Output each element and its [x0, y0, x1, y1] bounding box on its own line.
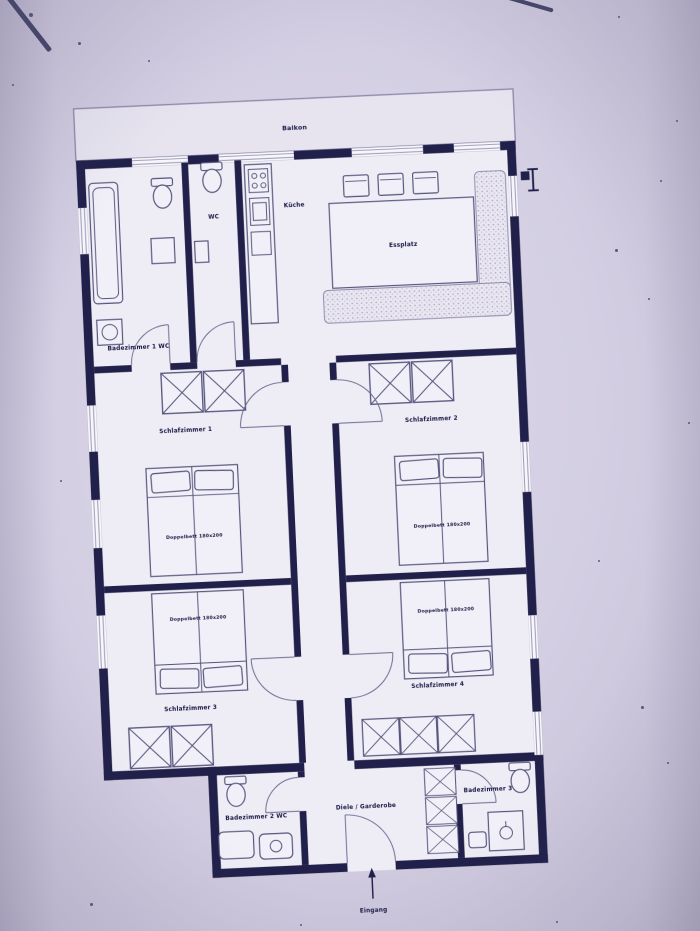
balcony-label: Balkon [282, 124, 307, 132]
dust-speck [300, 924, 302, 926]
dust-speck [60, 480, 62, 482]
dust-speck [615, 249, 618, 252]
photo-scratch [4, 0, 52, 52]
dust-speck [598, 560, 600, 562]
wardrobe-icon [400, 716, 438, 754]
window [508, 176, 519, 217]
coat-closet-icon [424, 767, 456, 795]
sink-icon [218, 831, 254, 860]
chair-icon [343, 175, 369, 197]
dust-speck [618, 16, 620, 18]
dust-speck [688, 422, 690, 424]
dust-speck [12, 84, 14, 86]
bathtub-icon [89, 182, 123, 304]
chair-icon [378, 173, 404, 195]
coat-closet-icon [425, 796, 457, 824]
entrance-arrow-icon [368, 868, 377, 899]
double-bed-icon: Doppelbett 180x200 [394, 452, 488, 565]
dust-speck [667, 762, 669, 764]
dust-speck [78, 42, 81, 45]
dust-speck [556, 921, 558, 923]
pillow-icon [443, 458, 482, 478]
wardrobe-icon [203, 370, 245, 412]
dust-speck [641, 706, 644, 709]
washer-icon [97, 319, 123, 345]
pillow-icon [409, 654, 448, 674]
double-bed-icon: Doppelbett 180x200 [146, 465, 242, 577]
double-bed-icon: Doppelbett 180x200 [400, 579, 493, 679]
pillow-icon [195, 470, 234, 490]
dust-speck [148, 60, 150, 62]
room-dining: Essplatz [318, 168, 512, 323]
pillow-icon [203, 665, 243, 687]
wardrobe-icon [437, 714, 475, 752]
pillow-icon [151, 471, 191, 493]
pillow-icon [399, 459, 439, 481]
room-label: WC [208, 214, 219, 220]
dust-speck [648, 298, 650, 300]
pillow-icon [451, 650, 491, 672]
photo-of-floor-plan: { "photo": { "background_color": "#d4cfe… [0, 0, 700, 931]
dust-speck [676, 120, 678, 122]
wardrobe-icon [362, 718, 400, 756]
section-marker-icon [520, 169, 538, 191]
dust-speck [90, 903, 93, 906]
double-bed-icon: Doppelbett 180x200 [152, 590, 248, 694]
chair-icon [412, 172, 438, 194]
coat-closet-icon [427, 825, 459, 853]
wardrobe-icon [171, 724, 213, 766]
sink-icon [151, 238, 175, 264]
room-label: Küche [284, 203, 305, 210]
wardrobe-icon [129, 726, 171, 768]
floor-plan: Balkon [72, 86, 572, 930]
entrance-label: Eingang [360, 908, 388, 915]
shower-icon [488, 811, 524, 851]
sink-icon [194, 241, 208, 263]
pillow-icon [160, 669, 199, 689]
dust-speck [29, 13, 33, 17]
shower-icon [259, 833, 293, 860]
wardrobe-icon [411, 360, 453, 402]
sink-icon [469, 832, 487, 848]
wardrobe-icon [369, 362, 411, 404]
wardrobe-icon [161, 372, 203, 414]
dust-speck [660, 180, 662, 182]
photo-scratch [506, 0, 553, 13]
